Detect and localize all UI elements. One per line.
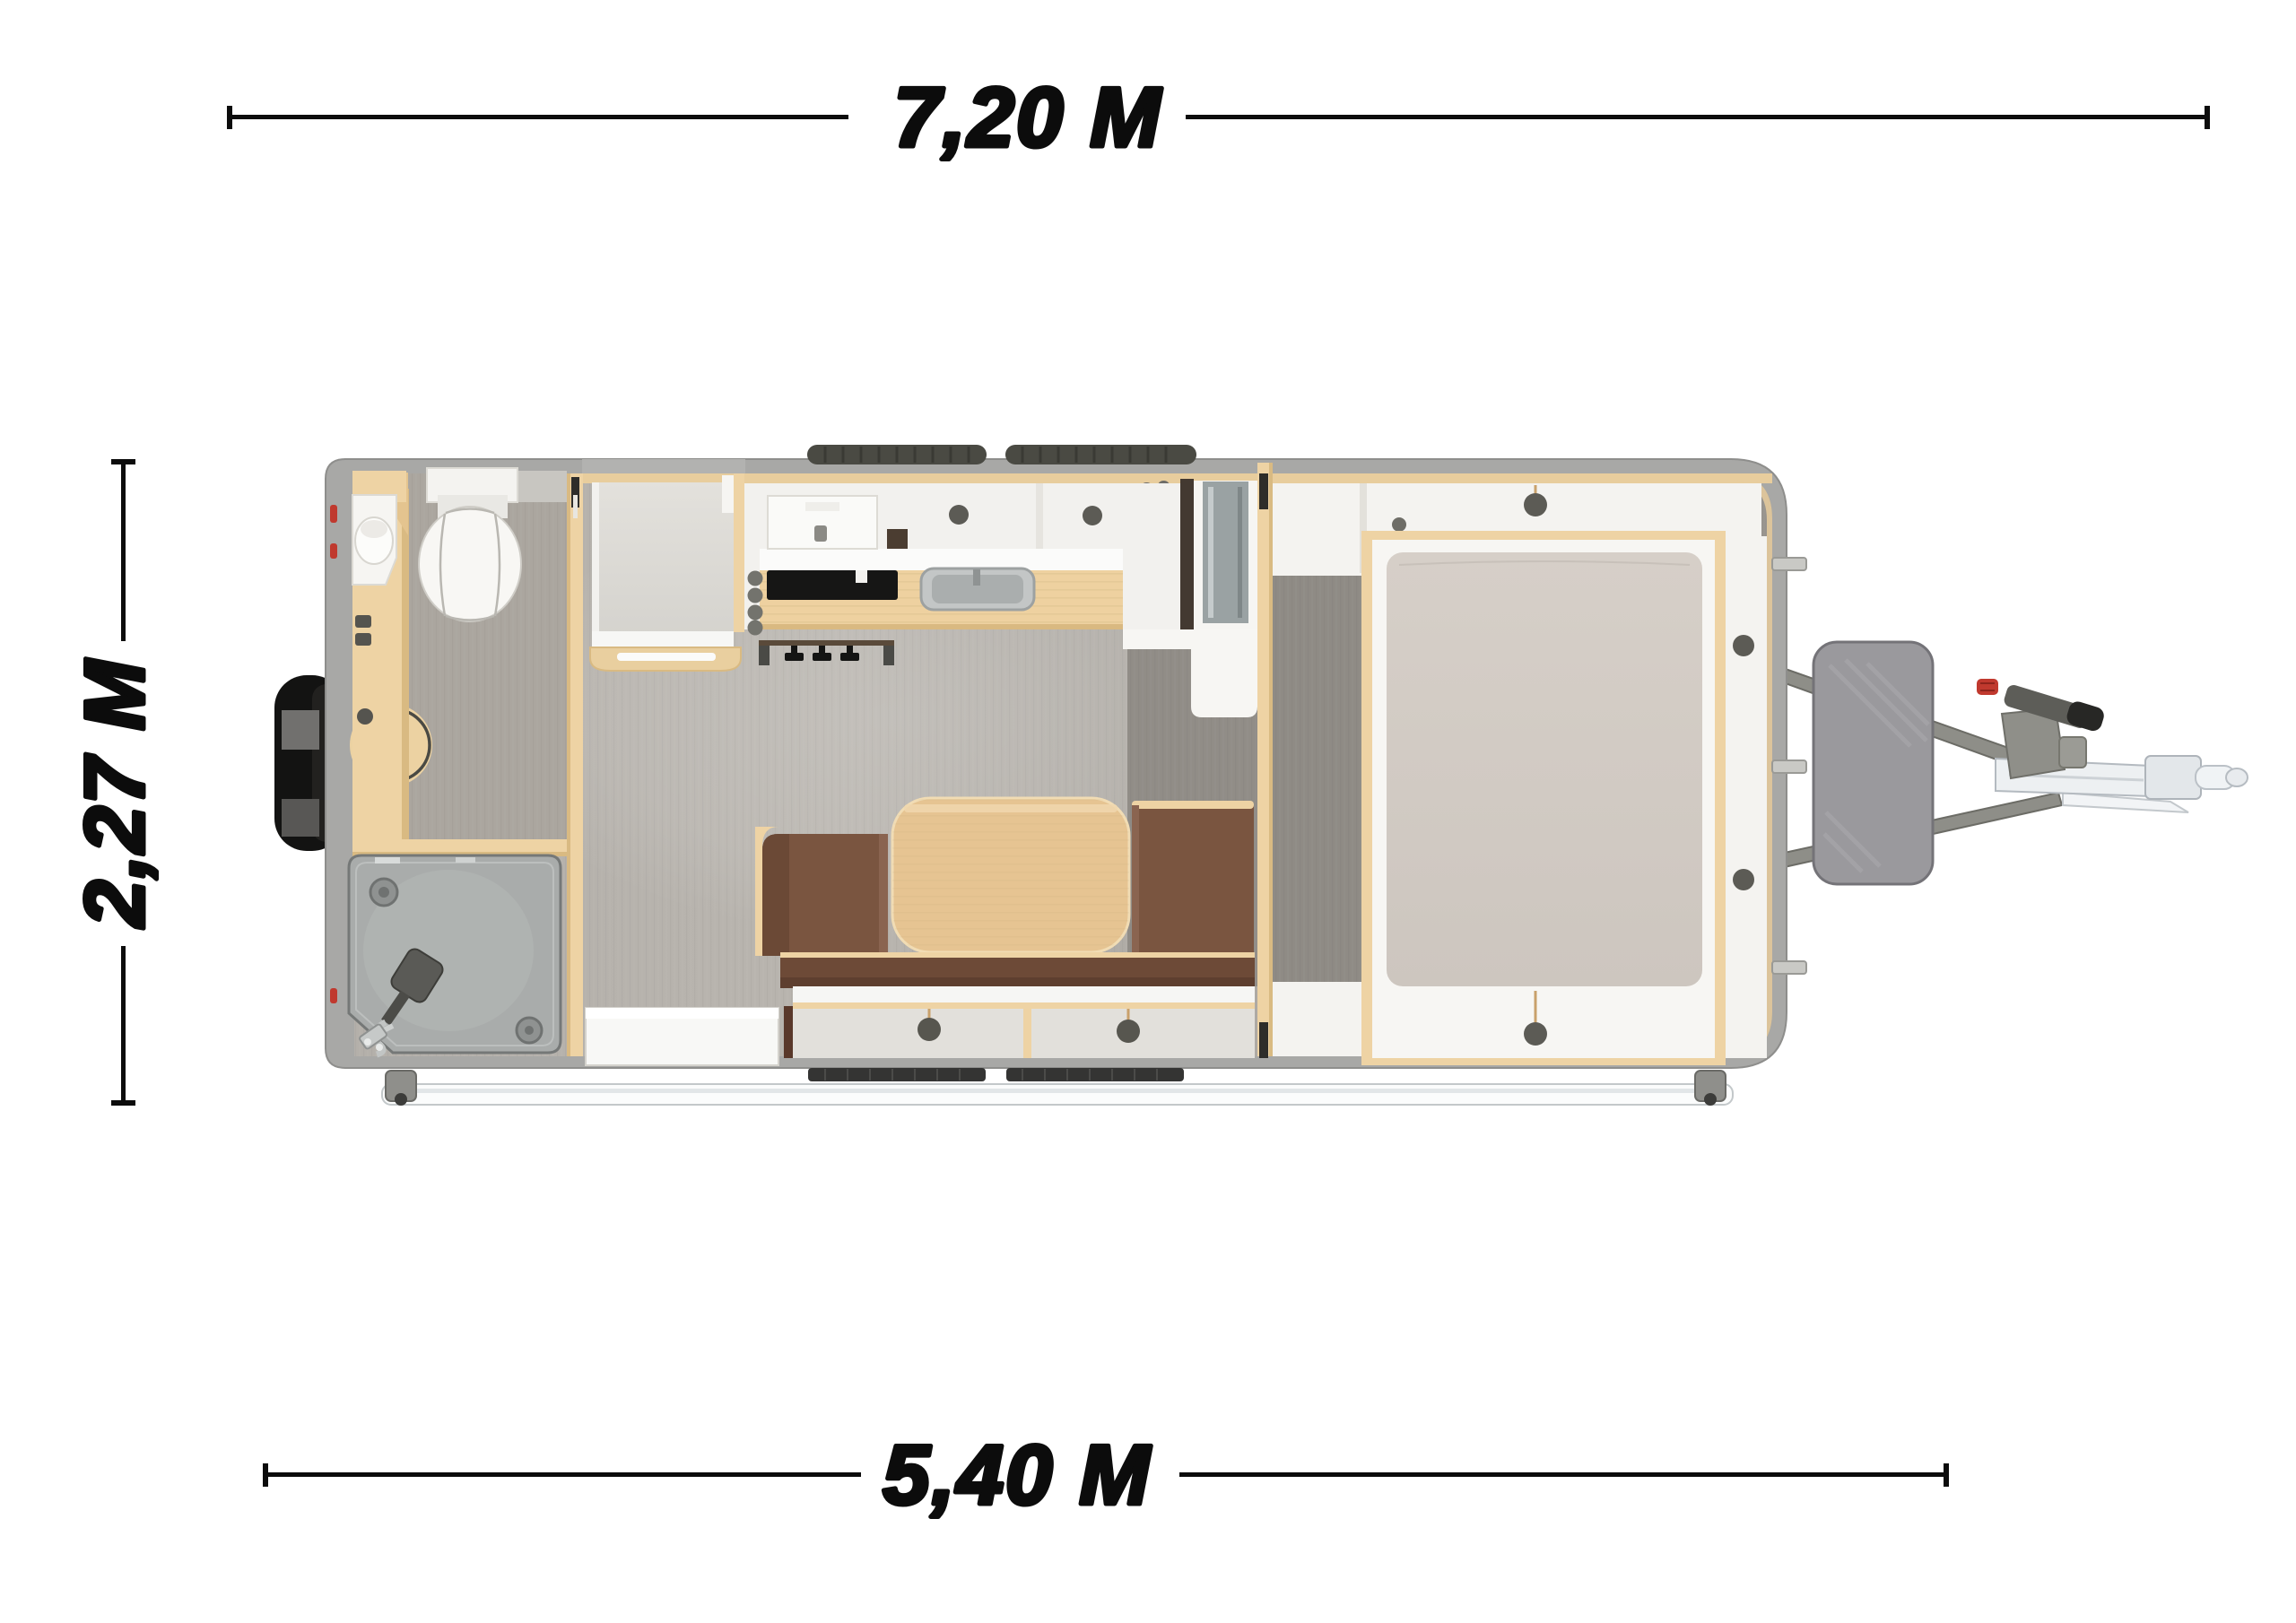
svg-text:7,20 M: 7,20 M [893, 70, 1161, 164]
svg-text:5,40 M: 5,40 M [883, 1428, 1151, 1522]
svg-text:2,27 M: 2,27 M [67, 658, 161, 928]
